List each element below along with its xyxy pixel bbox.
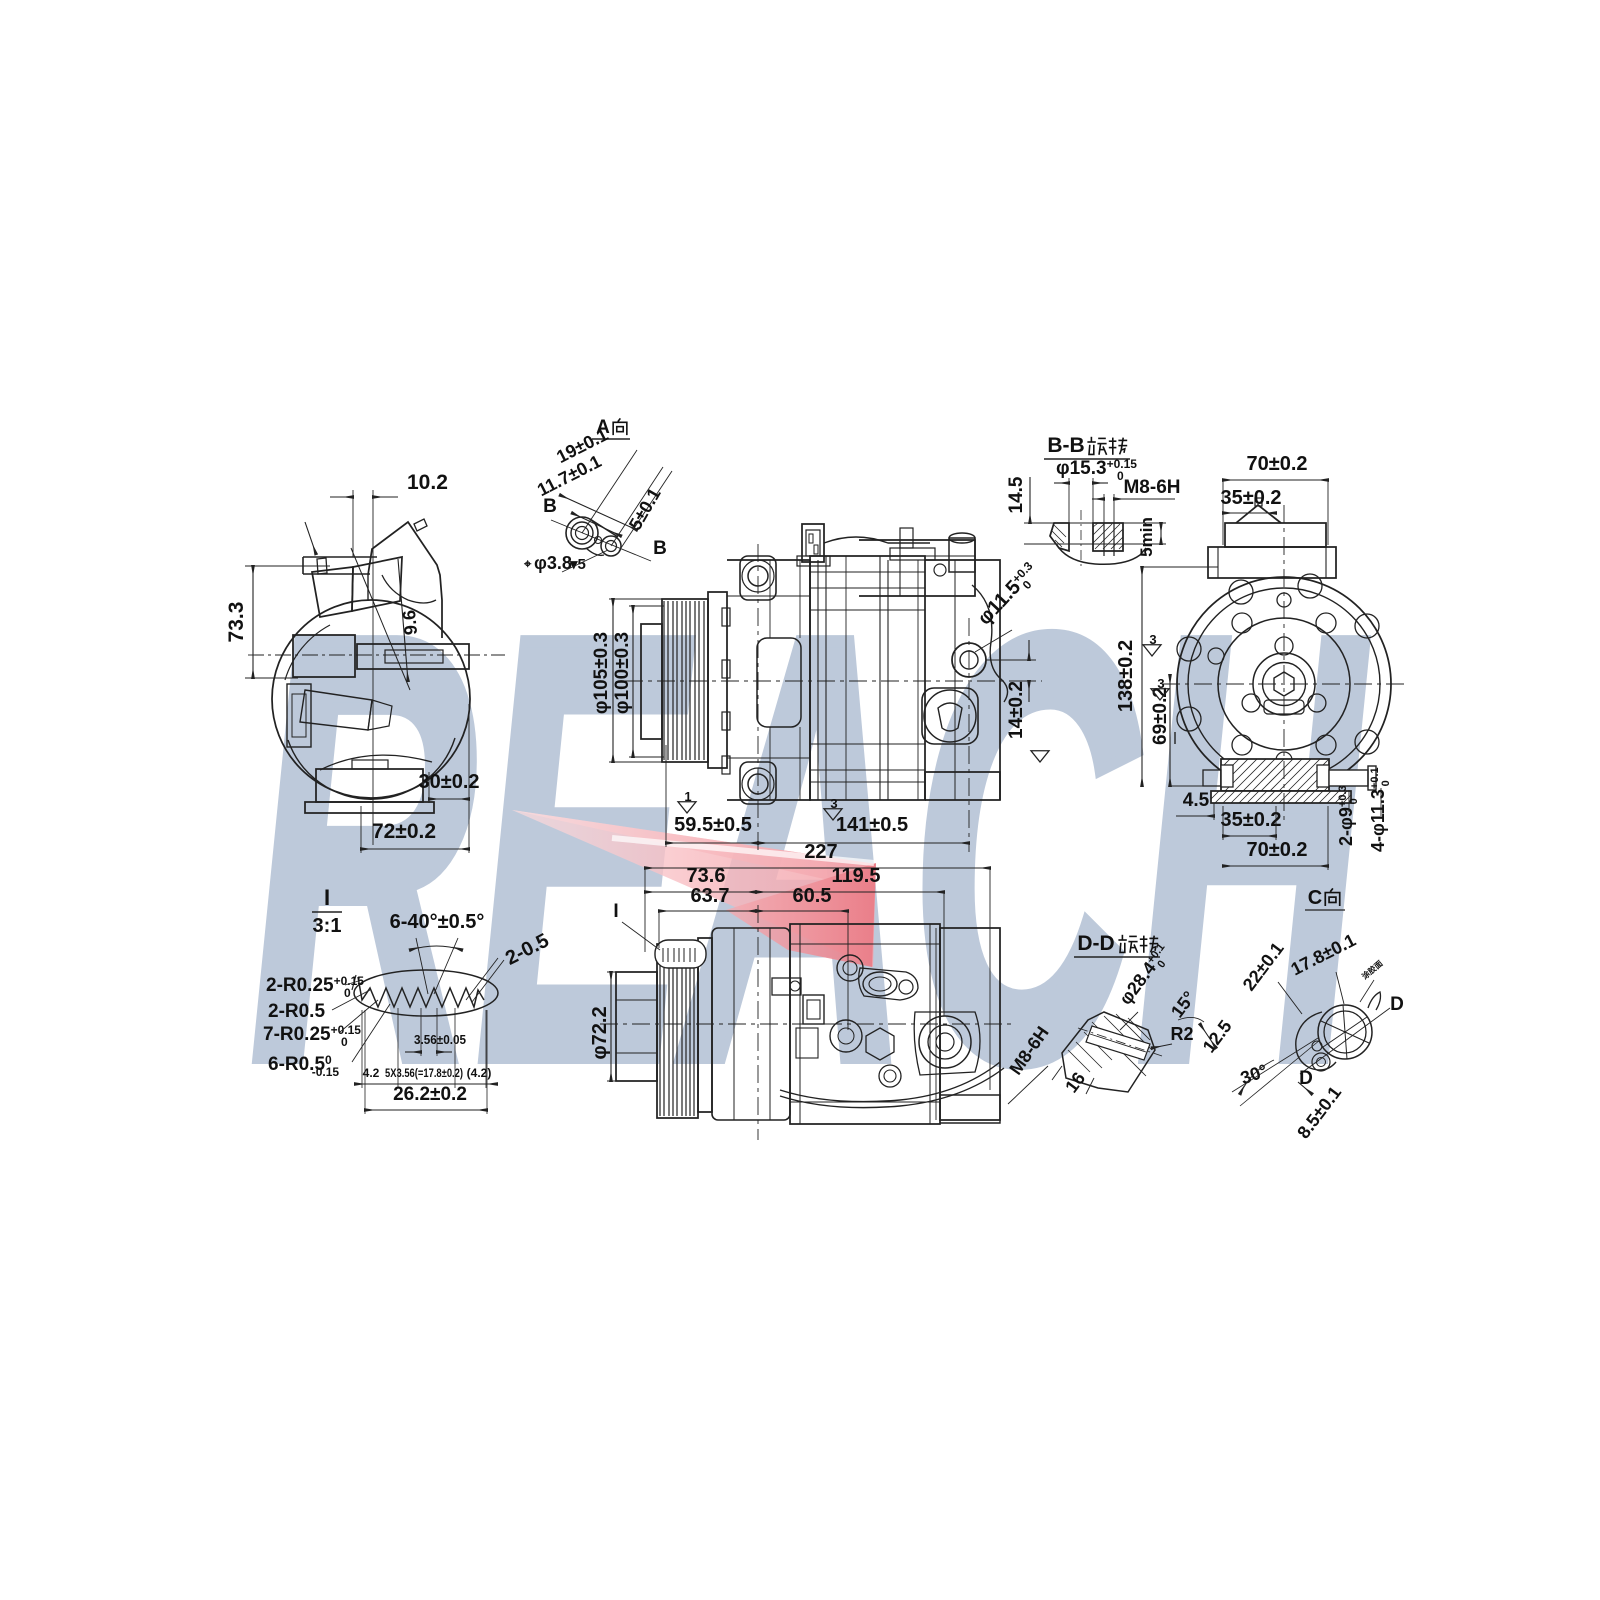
svg-text:5min: 5min: [1137, 517, 1156, 557]
svg-text:59.5±0.5: 59.5±0.5: [674, 814, 752, 836]
svg-text:3.56±0.05: 3.56±0.05: [414, 1032, 466, 1047]
svg-text:I: I: [613, 901, 618, 922]
svg-text:73.6: 73.6: [687, 865, 726, 887]
svg-text:138±0.2: 138±0.2: [1115, 640, 1137, 712]
svg-text:B: B: [653, 538, 667, 559]
svg-text:1: 1: [684, 789, 691, 804]
svg-text:35±0.2: 35±0.2: [1220, 809, 1281, 831]
svg-text:(4.2): (4.2): [467, 1066, 492, 1080]
svg-text:63.7: 63.7: [691, 885, 730, 907]
svg-text:D: D: [1390, 994, 1404, 1015]
svg-text:B-B: B-B: [1047, 434, 1084, 457]
svg-text:9.6: 9.6: [399, 609, 421, 636]
svg-text:14±0.2: 14±0.2: [1006, 681, 1027, 739]
svg-text:60.5: 60.5: [793, 885, 832, 907]
svg-text:2-R0.5: 2-R0.5: [268, 1001, 325, 1022]
svg-text:B: B: [543, 496, 557, 517]
svg-text:4.5: 4.5: [1183, 790, 1210, 811]
svg-text:14.5: 14.5: [1006, 476, 1027, 513]
svg-text:70±0.2: 70±0.2: [1246, 453, 1307, 475]
svg-text:I: I: [324, 885, 330, 910]
svg-text:C: C: [1308, 887, 1322, 909]
svg-text:69±0.2: 69±0.2: [1150, 687, 1171, 745]
svg-text:141±0.5: 141±0.5: [836, 814, 908, 836]
svg-text:227: 227: [804, 841, 837, 863]
svg-text:D-D: D-D: [1077, 932, 1114, 955]
svg-text:35±0.2: 35±0.2: [1220, 487, 1281, 509]
svg-text:72±0.2: 72±0.2: [372, 820, 436, 843]
svg-text:R2: R2: [1170, 1024, 1193, 1044]
svg-text:26.2±0.2: 26.2±0.2: [393, 1084, 467, 1105]
svg-text:φ72.2: φ72.2: [589, 1006, 611, 1059]
svg-text:73.3: 73.3: [225, 602, 248, 643]
svg-text:70±0.2: 70±0.2: [1246, 839, 1307, 861]
svg-text:10.2: 10.2: [407, 471, 448, 494]
svg-text:5X3.56(=17.8±0.2): 5X3.56(=17.8±0.2): [385, 1066, 463, 1080]
svg-text:119.5: 119.5: [832, 865, 881, 887]
svg-text:6-40°±0.5°: 6-40°±0.5°: [390, 911, 485, 933]
svg-text:3: 3: [830, 796, 837, 811]
svg-text:3: 3: [1157, 676, 1164, 691]
svg-text:M8-6H: M8-6H: [1123, 477, 1180, 498]
svg-text:φ100±0.3: φ100±0.3: [612, 632, 633, 714]
svg-text:3:1: 3:1: [313, 915, 342, 937]
svg-text:30±0.2: 30±0.2: [418, 771, 479, 793]
svg-text:φ105±0.3: φ105±0.3: [591, 632, 612, 714]
svg-text:⌖: ⌖: [523, 556, 532, 571]
svg-text:D: D: [1299, 1068, 1313, 1089]
svg-text:3: 3: [1149, 632, 1156, 647]
